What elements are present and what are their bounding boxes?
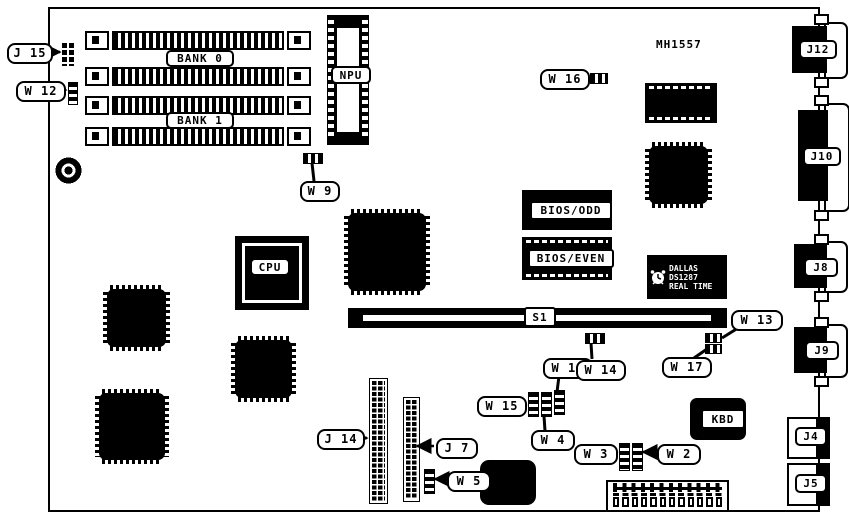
simm-clip bbox=[287, 31, 311, 50]
simm-clip bbox=[287, 127, 311, 146]
kbd-label: KBD bbox=[701, 409, 745, 429]
dallas-line2: DS1287 bbox=[669, 273, 712, 282]
j12-bracket-tab bbox=[814, 77, 829, 88]
simm-clip bbox=[287, 96, 311, 115]
clock-icon bbox=[649, 267, 667, 287]
simm-socket-bank0-a bbox=[85, 31, 311, 50]
j8-label: J8 bbox=[804, 258, 838, 277]
j14-header bbox=[369, 378, 388, 504]
callout-j14: J 14 bbox=[317, 429, 365, 450]
simm-socket-bank1-b bbox=[85, 127, 311, 146]
j9-label: J9 bbox=[805, 341, 839, 360]
w15-jumper bbox=[528, 392, 539, 417]
callout-w5: W 5 bbox=[447, 471, 491, 492]
j7-header bbox=[403, 397, 420, 502]
w12-jumper bbox=[68, 82, 78, 105]
simm-clip bbox=[85, 96, 109, 115]
qfp-core bbox=[348, 213, 426, 291]
header-grid bbox=[372, 381, 385, 501]
motherboard-diagram: BANK 0 BANK 1 NPU MH1557 BIOS/ODD BIOS/E… bbox=[0, 0, 849, 527]
j9-bracket-tab bbox=[814, 317, 829, 328]
j15-jumper-block bbox=[62, 43, 76, 66]
qfp-chip-topright bbox=[645, 142, 712, 208]
dallas-rtc-chip: DALLAS DS1287 REAL TIME bbox=[647, 255, 727, 299]
terminal-squares bbox=[613, 497, 722, 507]
power-terminal-block bbox=[606, 480, 729, 512]
board-part-number: MH1557 bbox=[656, 38, 702, 51]
simm-clip bbox=[85, 31, 109, 50]
w11-jumper bbox=[554, 390, 565, 415]
bank1-label: BANK 1 bbox=[166, 112, 234, 129]
simm-contacts bbox=[112, 67, 284, 86]
j4-label: J4 bbox=[795, 427, 827, 446]
terminal-pins bbox=[613, 483, 722, 492]
callout-w14: W 14 bbox=[576, 360, 626, 381]
callout-w2: W 2 bbox=[657, 444, 701, 465]
w9-jumper bbox=[303, 153, 323, 164]
j8-bracket-tab bbox=[814, 291, 829, 302]
npu-label: NPU bbox=[331, 66, 371, 84]
j12-bracket-tab bbox=[814, 14, 829, 25]
j5-label: J5 bbox=[795, 474, 827, 493]
callout-w4: W 4 bbox=[531, 430, 575, 451]
dallas-line3: REAL TIME bbox=[669, 282, 712, 291]
simm-contacts bbox=[112, 31, 284, 50]
j8-bracket-tab bbox=[814, 234, 829, 245]
simm-socket-bank0-b bbox=[85, 67, 311, 86]
w3-jumper bbox=[619, 443, 630, 471]
callout-w9: W 9 bbox=[300, 181, 340, 202]
w17-jumper bbox=[705, 344, 722, 354]
j9-bracket-tab bbox=[814, 376, 829, 387]
bank0-label: BANK 0 bbox=[166, 50, 234, 67]
bios-odd-label: BIOS/ODD bbox=[530, 201, 612, 220]
qfp-chip-left-upper bbox=[103, 285, 170, 351]
qfp-core bbox=[235, 340, 292, 398]
w2-jumper bbox=[632, 443, 643, 471]
qfp-chip-center-mid bbox=[231, 336, 296, 402]
w13-jumper bbox=[705, 333, 722, 343]
dallas-line1: DALLAS bbox=[669, 264, 712, 273]
simm-contacts bbox=[112, 127, 284, 146]
qfp-chip-left-lower bbox=[95, 389, 169, 464]
callout-w17: W 17 bbox=[662, 357, 712, 378]
j12-label: J12 bbox=[799, 40, 837, 59]
j10-bracket-tab bbox=[814, 210, 829, 221]
qfp-core bbox=[99, 393, 165, 460]
w5-jumper bbox=[424, 469, 435, 494]
callout-w16: W 16 bbox=[540, 69, 590, 90]
dip-chip-topright bbox=[645, 83, 717, 123]
simm-clip bbox=[287, 67, 311, 86]
mounting-hole bbox=[55, 157, 82, 184]
w16-jumper bbox=[590, 73, 608, 84]
callout-w15: W 15 bbox=[477, 396, 527, 417]
dallas-text: DALLAS DS1287 REAL TIME bbox=[669, 264, 712, 291]
s1-label: S1 bbox=[524, 307, 556, 327]
simm-clip bbox=[85, 67, 109, 86]
callout-j15: J 15 bbox=[7, 43, 53, 64]
cpu-label: CPU bbox=[250, 258, 290, 276]
qfp-core bbox=[107, 289, 166, 347]
w4-jumper bbox=[541, 392, 552, 417]
j10-label: J10 bbox=[803, 147, 841, 166]
header-grid bbox=[406, 400, 417, 499]
simm-clip bbox=[85, 127, 109, 146]
callout-w3: W 3 bbox=[574, 444, 618, 465]
qfp-core bbox=[649, 146, 708, 204]
callout-w12: W 12 bbox=[16, 81, 66, 102]
callout-w13: W 13 bbox=[731, 310, 783, 331]
callout-j7: J 7 bbox=[436, 438, 478, 459]
bios-even-label: BIOS/EVEN bbox=[528, 249, 614, 268]
w14-jumper bbox=[585, 333, 605, 344]
qfp-chip-center-large bbox=[344, 209, 430, 295]
terminal-dashes bbox=[613, 493, 722, 496]
j10-bracket-tab bbox=[814, 95, 829, 106]
